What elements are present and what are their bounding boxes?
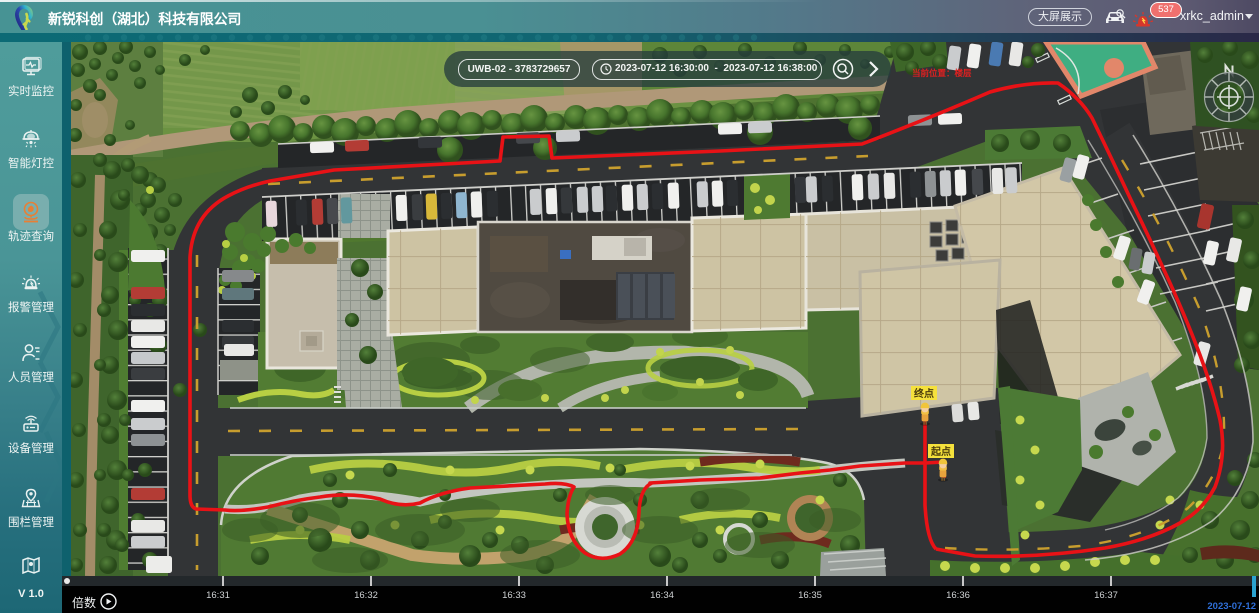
svg-text:当前位置：楼层: 当前位置：楼层: [912, 68, 972, 78]
svg-text:终点: 终点: [914, 387, 934, 400]
svg-text:起点: 起点: [930, 445, 951, 458]
